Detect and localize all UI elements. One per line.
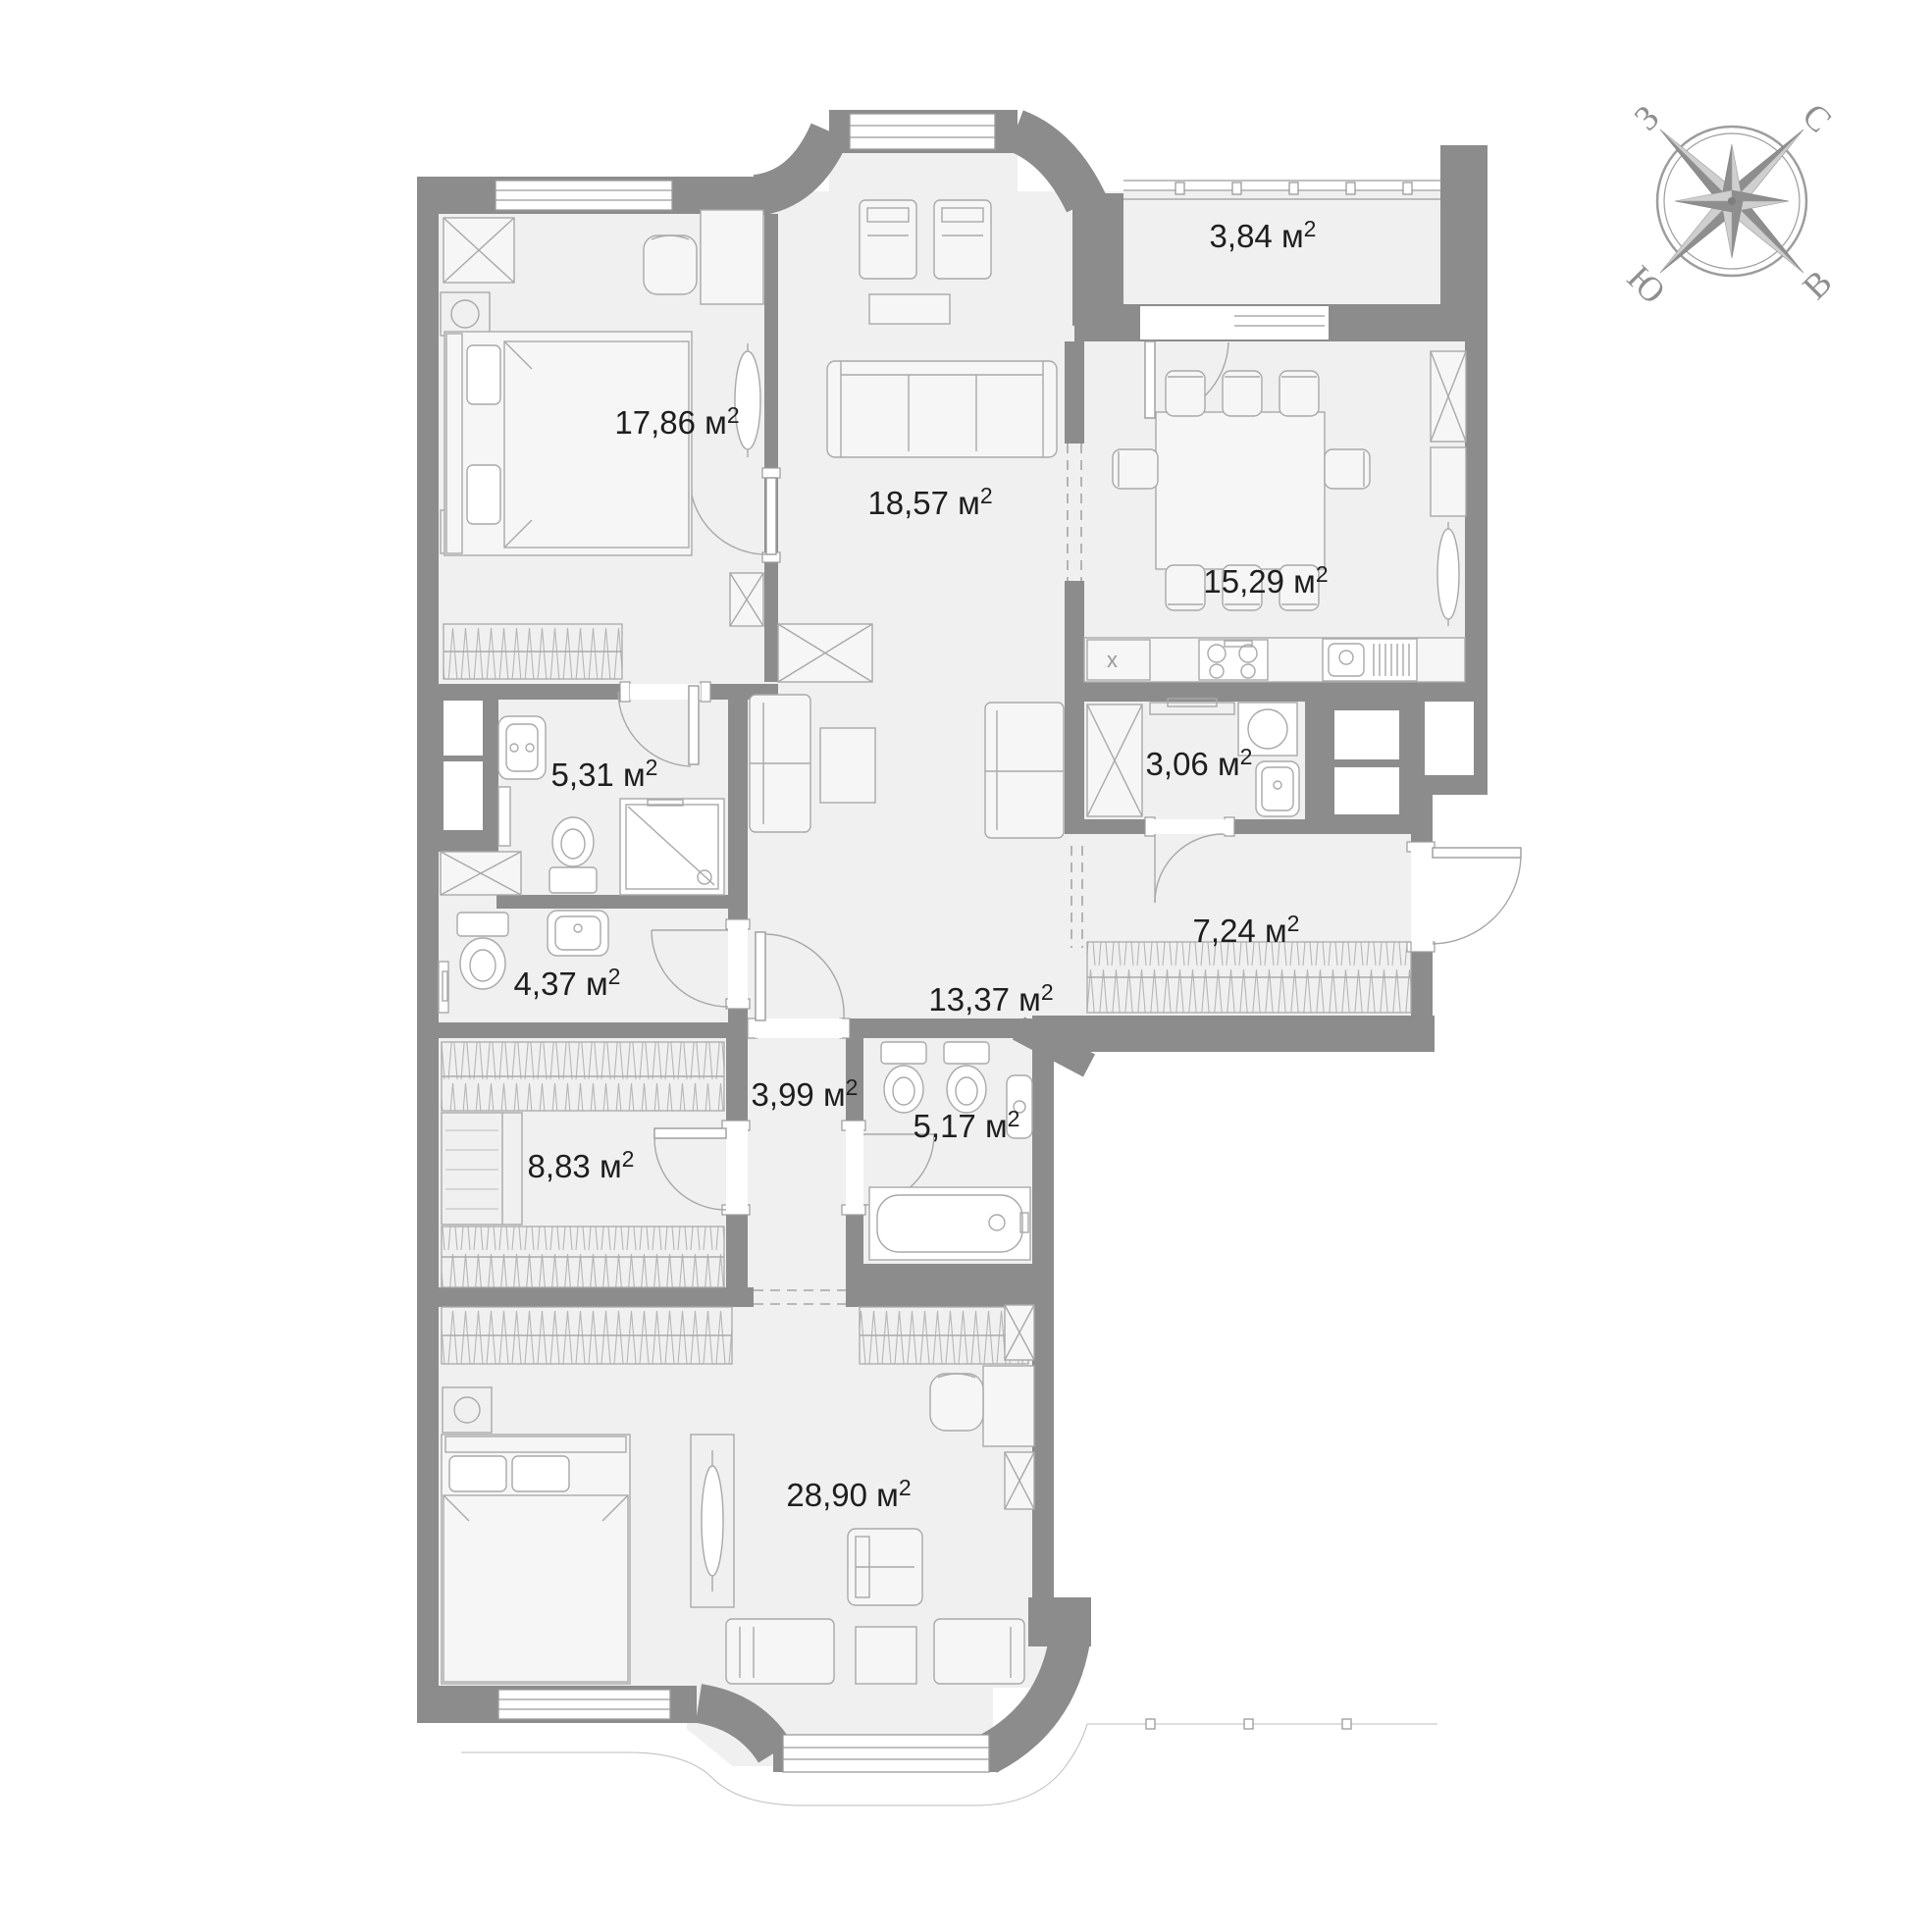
armchair-icon: [860, 200, 916, 279]
room-label-laundry: 3,06 м2: [1146, 744, 1253, 782]
washer-icon: [441, 852, 521, 895]
chair-icon: [1223, 371, 1262, 416]
chair-icon: [1279, 371, 1319, 416]
bed-icon: [444, 332, 692, 555]
armchair-icon: [848, 1529, 922, 1605]
compass-west-label: З: [1626, 97, 1666, 137]
cabinet-icon: [1005, 1452, 1034, 1509]
open-passage-bedroom-2: [754, 1287, 846, 1307]
wardrobe-hatch-icon: [442, 1307, 732, 1364]
cabinet-icon: [1005, 1305, 1034, 1360]
towel-rail-icon: [439, 962, 448, 1013]
chair-icon: [644, 235, 697, 294]
chair-icon: [1113, 449, 1158, 489]
wardrobe-hatch-icon: [1087, 942, 1411, 1013]
cabinet-icon: [730, 573, 763, 626]
desk-icon: [983, 1366, 1034, 1446]
toilet-icon: [881, 1042, 926, 1113]
bidet-icon: [944, 1042, 989, 1113]
chair-icon: [1166, 371, 1205, 416]
toilet-icon: [549, 817, 597, 893]
svg-text:х: х: [1107, 648, 1118, 672]
chair-icon: [930, 1374, 983, 1431]
bathtub-icon: [869, 1187, 1030, 1260]
cabinet-icon: [498, 787, 510, 846]
toilet-icon: [457, 913, 508, 989]
cabinet-icon: [1431, 447, 1466, 516]
wardrobe-hatch-icon: [860, 1307, 1028, 1364]
kitchen-counter: х: [1084, 638, 1465, 682]
room-label-balcony: 3,84 м2: [1210, 216, 1317, 254]
room-label-bathroom-3: 5,17 м2: [914, 1106, 1020, 1144]
compass-star-icon: [1660, 130, 1803, 273]
floor-plan: х: [0, 0, 1932, 1932]
sink-icon: [1256, 761, 1299, 816]
room-label-wardrobe-room: 8,83 м2: [528, 1146, 635, 1184]
sink-icon: [498, 716, 546, 779]
armchair-icon: [934, 200, 991, 279]
bench-icon: [750, 695, 810, 832]
compass-south-label: Ю: [1620, 258, 1673, 311]
wardrobe-icon: [1087, 705, 1142, 816]
fridge-icon: [1431, 351, 1466, 442]
sink-icon: [548, 911, 608, 956]
wardrobe-hatch-icon: [442, 1042, 724, 1111]
wardrobe-hatch-icon: [444, 624, 622, 679]
chair-icon: [1325, 449, 1370, 489]
room-label-entry-hall: 7,24 м2: [1193, 911, 1300, 949]
wardrobe-icon: [778, 624, 872, 682]
room-label-kitchen: 15,29 м2: [1203, 561, 1328, 600]
room-label-corridor: 3,99 м2: [752, 1074, 859, 1113]
stove-icon: [1199, 640, 1268, 680]
room-label-hallway: 13,37 м2: [928, 979, 1053, 1018]
room-label-bathroom-1: 5,31 м2: [551, 755, 658, 793]
compass-east-label: В: [1795, 262, 1839, 306]
wardrobe-icon: [444, 218, 514, 283]
room-label-living-room: 18,57 м2: [867, 483, 992, 521]
compass-rose: С В Ю З: [1620, 95, 1840, 311]
furniture-entry-hall: [1087, 942, 1411, 1013]
room-label-bathroom-2: 4,37 м2: [514, 964, 621, 1002]
console-icon: [820, 728, 875, 803]
coffee-table-icon: [869, 294, 950, 324]
bench-icon: [985, 703, 1064, 838]
room-label-bedroom-2: 28,90 м2: [786, 1475, 911, 1513]
bed-icon: [442, 1435, 630, 1684]
shower-icon: [620, 799, 724, 895]
sofa-icon: [726, 1619, 834, 1684]
entrance-door: [1407, 842, 1521, 952]
desk-icon: [701, 210, 763, 304]
sofa-icon: [827, 361, 1057, 457]
open-passage-living-kitchen: [1065, 444, 1084, 581]
compass-north-label: С: [1795, 95, 1839, 139]
sofa-icon: [934, 1619, 1024, 1684]
chair-icon: [1166, 565, 1205, 610]
coffee-table-icon: [856, 1627, 916, 1684]
sink-icon: [1323, 639, 1417, 681]
room-label-bedroom-main: 17,86 м2: [614, 402, 739, 441]
wardrobe-hatch-icon: [442, 1227, 724, 1287]
dining-table-icon: [1156, 412, 1325, 569]
